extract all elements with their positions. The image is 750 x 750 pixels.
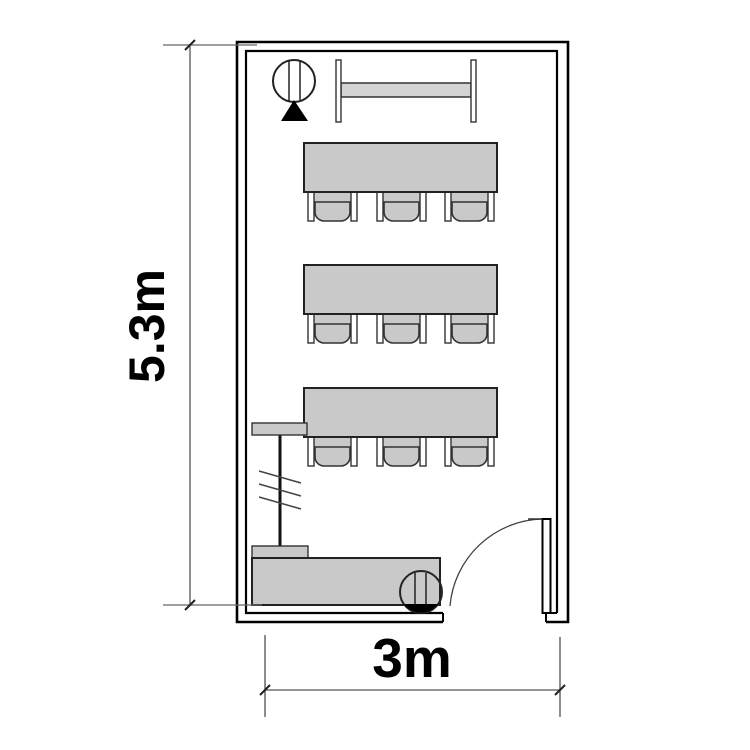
floor-plan-svg: 5.3m 3m [0, 0, 750, 750]
student-table-row-3 [304, 388, 497, 466]
trestle-table [336, 60, 476, 122]
student-table-row-2 [304, 265, 497, 343]
student-table [304, 388, 497, 437]
fixture-circle [273, 60, 315, 102]
door-leaf [543, 519, 551, 613]
desk-chair-backrest [404, 604, 438, 613]
trestle-bar [341, 83, 471, 97]
trestle-end-plate [471, 60, 476, 122]
student-table [304, 265, 497, 314]
screen-top-cap [252, 423, 307, 435]
height-dimension-label: 5.3m [119, 269, 175, 383]
dimension-height: 5.3m [119, 40, 262, 610]
round-fixture-symbol [273, 60, 315, 121]
door [450, 519, 551, 613]
teacher-desk [252, 558, 440, 605]
dimension-width: 3m [260, 627, 565, 717]
trestle-end-plate [336, 60, 341, 122]
floor-plan: 5.3m 3m [0, 0, 750, 750]
student-table-row-1 [304, 143, 497, 221]
student-table [304, 143, 497, 192]
screen-bottom-cap [252, 546, 308, 558]
width-dimension-label: 3m [372, 627, 452, 689]
desk-surface [252, 558, 440, 605]
door-swing-arc [450, 519, 542, 606]
fixture-direction-triangle [281, 100, 308, 121]
door-jamb-right [546, 613, 557, 622]
projection-screen [252, 423, 308, 558]
